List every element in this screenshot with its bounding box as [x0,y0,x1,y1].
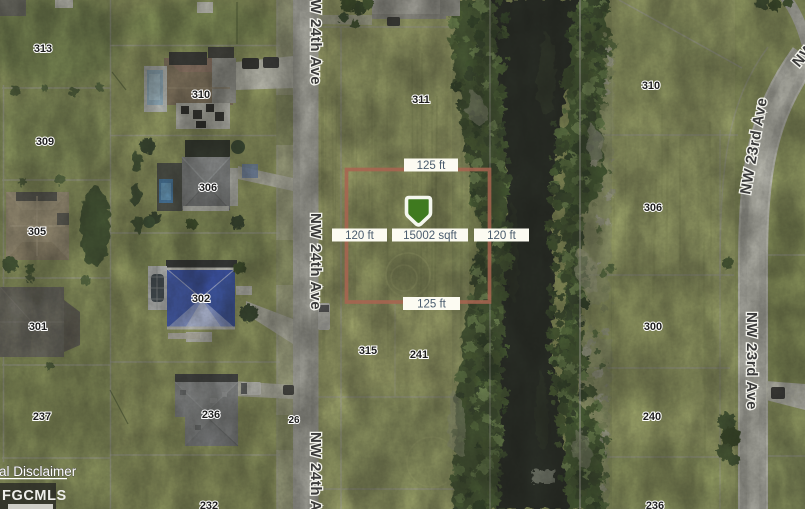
svg-text:125 ft: 125 ft [417,160,447,172]
svg-text:120 ft: 120 ft [487,230,517,242]
svg-text:237: 237 [33,411,51,423]
svg-text:309: 309 [36,136,54,148]
svg-text:306: 306 [644,202,662,214]
svg-text:120 ft: 120 ft [345,230,375,242]
svg-text:310: 310 [192,89,210,101]
svg-text:NW 24th Ave: NW 24th Ave [307,213,324,310]
svg-text:240: 240 [643,411,661,423]
svg-text:125 ft: 125 ft [417,298,447,310]
svg-text:NW 24th Ave: NW 24th Ave [307,432,324,509]
svg-text:241: 241 [410,349,428,361]
svg-text:310: 310 [642,80,660,92]
svg-text:315: 315 [359,345,377,357]
svg-text:236: 236 [646,500,664,509]
svg-text:al Disclaimer: al Disclaimer [0,464,77,479]
svg-text:305: 305 [28,226,46,238]
svg-text:313: 313 [34,43,52,55]
svg-text:236: 236 [202,409,220,421]
svg-text:301: 301 [29,321,47,333]
svg-text:232: 232 [200,500,218,509]
svg-text:306: 306 [199,182,217,194]
svg-text:15002 sqft: 15002 sqft [403,230,458,242]
svg-text:FGCMLS: FGCMLS [2,488,67,504]
svg-text:26: 26 [288,415,300,426]
svg-text:311: 311 [412,94,430,106]
svg-text:302: 302 [192,293,210,305]
svg-text:300: 300 [644,321,662,333]
svg-text:NW 24th Ave: NW 24th Ave [307,0,324,85]
svg-text:NW 23rd Ave: NW 23rd Ave [743,312,760,410]
